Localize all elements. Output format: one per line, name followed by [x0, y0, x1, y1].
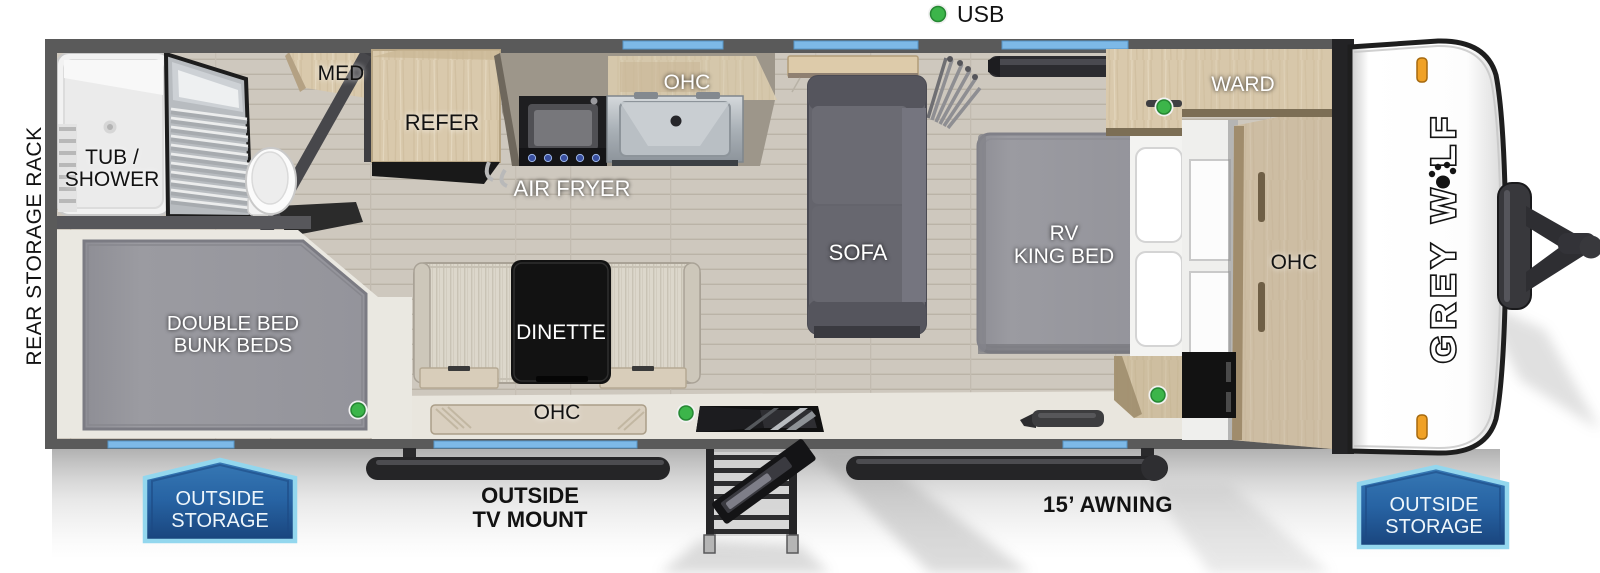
svg-text:OHC: OHC [534, 401, 581, 424]
svg-text:OUTSIDE: OUTSIDE [481, 483, 579, 508]
svg-text:15’ AWNING: 15’ AWNING [1043, 492, 1173, 517]
svg-text:REAR STORAGE RACK: REAR STORAGE RACK [23, 126, 46, 365]
svg-text:RV: RV [1050, 222, 1079, 245]
svg-text:TV MOUNT: TV MOUNT [473, 507, 588, 532]
svg-text:KING BED: KING BED [1014, 245, 1114, 268]
svg-text:STORAGE: STORAGE [1385, 516, 1482, 538]
svg-text:DOUBLE BED: DOUBLE BED [167, 312, 299, 335]
svg-text:MED: MED [318, 62, 365, 85]
svg-text:BUNK BEDS: BUNK BEDS [174, 334, 292, 357]
svg-text:DINETTE: DINETTE [516, 321, 606, 344]
svg-text:SOFA: SOFA [829, 240, 888, 265]
svg-text:AIR FRYER: AIR FRYER [514, 176, 631, 201]
svg-text:REFER: REFER [405, 110, 480, 135]
svg-text:STORAGE: STORAGE [171, 510, 268, 532]
svg-text:GREY W LF: GREY W LF [1425, 111, 1463, 363]
svg-text:USB: USB [957, 1, 1004, 27]
svg-text:TUB /: TUB / [85, 146, 139, 169]
svg-text:OHC: OHC [664, 71, 711, 94]
svg-text:SHOWER: SHOWER [65, 168, 160, 191]
svg-text:OHC: OHC [1271, 251, 1318, 274]
svg-text:OUTSIDE: OUTSIDE [176, 488, 265, 510]
svg-text:WARD: WARD [1211, 73, 1274, 96]
svg-text:OUTSIDE: OUTSIDE [1390, 494, 1479, 516]
